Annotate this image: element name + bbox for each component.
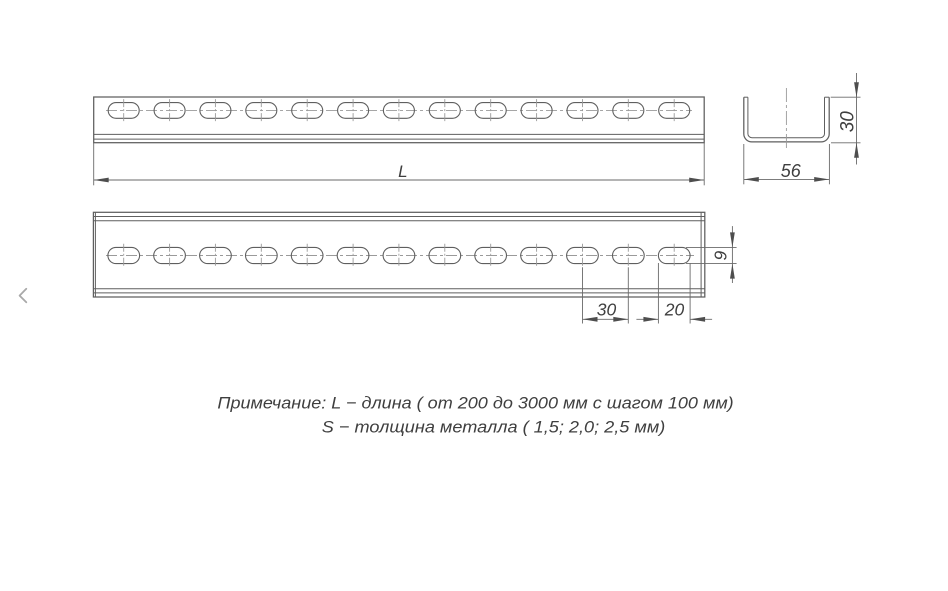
svg-text:30: 30 [837, 111, 858, 133]
svg-text:30: 30 [597, 299, 617, 319]
svg-text:L: L [398, 162, 407, 181]
svg-text:20: 20 [664, 299, 685, 319]
svg-text:S − толщина металла ( 1,5; 2,0: S − толщина металла ( 1,5; 2,0; 2,5 мм) [322, 418, 666, 437]
svg-text:9: 9 [711, 250, 731, 260]
svg-text:56: 56 [781, 161, 802, 181]
svg-text:Примечание: L − длина ( от 200: Примечание: L − длина ( от 200 до 3000 м… [217, 394, 733, 413]
